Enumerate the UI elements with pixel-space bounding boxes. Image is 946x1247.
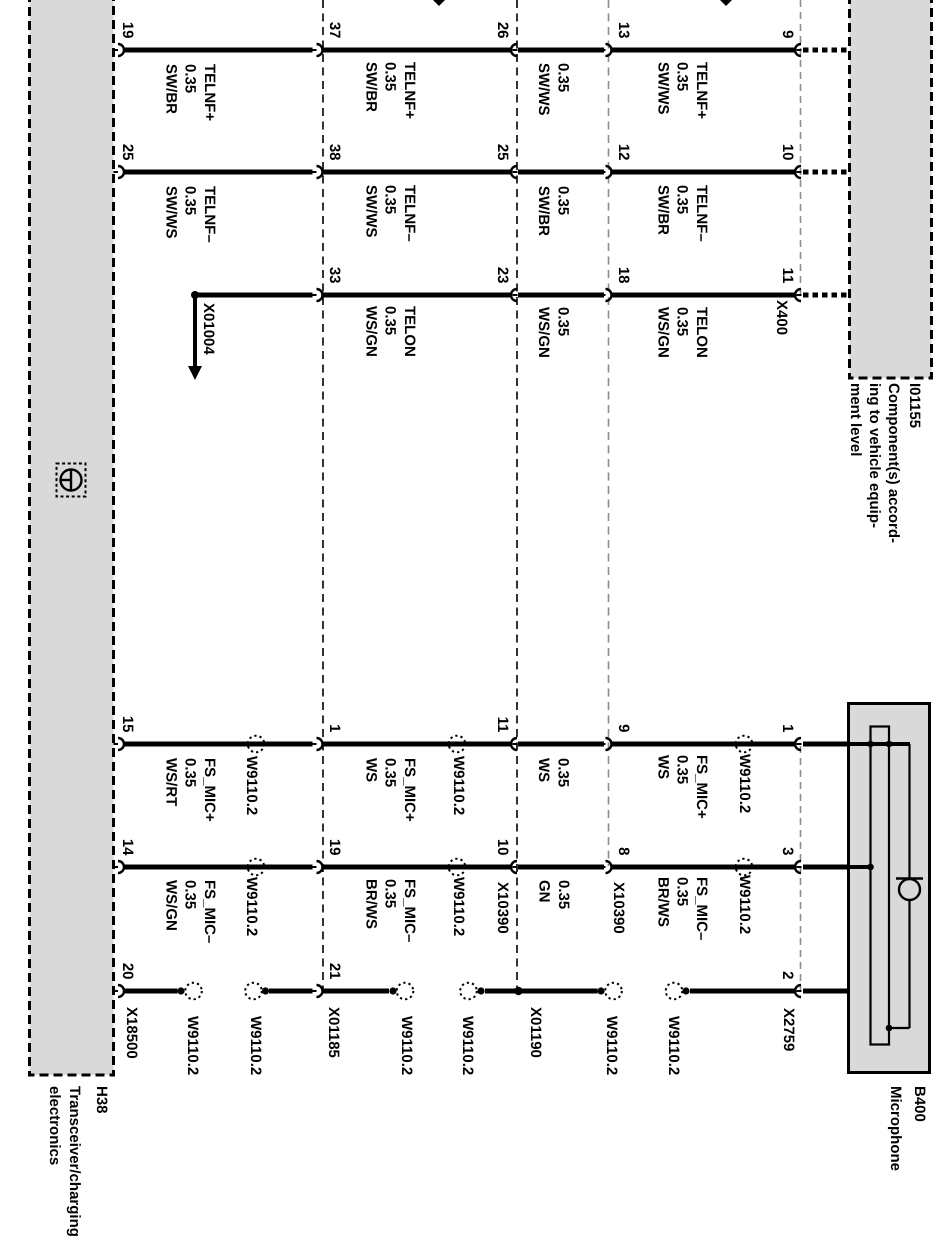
svg-text:H38: H38 (93, 1086, 110, 1114)
svg-text:SW/WS: SW/WS (162, 186, 179, 239)
svg-text:1: 1 (779, 724, 796, 732)
svg-text:FS_MIC+: FS_MIC+ (401, 758, 418, 822)
svg-text:25: 25 (119, 144, 136, 161)
svg-text:W9110.2: W9110.2 (736, 754, 753, 813)
svg-text:W9110.2: W9110.2 (398, 1016, 415, 1075)
svg-text:X18500: X18500 (123, 1007, 140, 1059)
svg-text:W9110.2: W9110.2 (450, 756, 467, 815)
svg-text:0.35: 0.35 (182, 186, 199, 215)
svg-text:ing to vehicle equip-: ing to vehicle equip- (866, 383, 883, 528)
svg-text:FS_MIC+: FS_MIC+ (201, 758, 218, 822)
svg-text:37: 37 (326, 22, 343, 39)
svg-text:SW/WS: SW/WS (362, 185, 379, 238)
svg-text:0.35: 0.35 (674, 62, 691, 91)
svg-text:FS_MIC–: FS_MIC– (693, 877, 710, 940)
svg-text:W9110.2: W9110.2 (450, 877, 467, 936)
svg-text:26: 26 (494, 22, 511, 39)
svg-text:3: 3 (779, 847, 796, 855)
svg-text:11: 11 (494, 717, 511, 733)
svg-text:WS/RT: WS/RT (162, 758, 179, 806)
svg-text:0.35: 0.35 (382, 306, 399, 335)
svg-text:WS: WS (535, 758, 552, 782)
svg-text:W9110.2: W9110.2 (459, 1016, 476, 1075)
svg-text:FS_MIC–: FS_MIC– (401, 879, 418, 942)
svg-text:20: 20 (119, 963, 136, 980)
svg-text:W9110.2: W9110.2 (243, 756, 260, 815)
svg-text:TELNF–: TELNF– (201, 186, 218, 243)
svg-text:W9110.2: W9110.2 (736, 875, 753, 934)
svg-text:WS/GN: WS/GN (162, 880, 179, 931)
svg-text:TELON: TELON (693, 307, 710, 358)
svg-text:X400: X400 (773, 300, 790, 335)
svg-text:14: 14 (119, 839, 136, 856)
svg-text:FS_MIC–: FS_MIC– (201, 880, 218, 943)
svg-text:TELNF–: TELNF– (401, 185, 418, 242)
svg-text:TELNF+: TELNF+ (201, 64, 218, 121)
svg-text:Transceiver/charging: Transceiver/charging (66, 1086, 83, 1237)
svg-text:2: 2 (779, 971, 796, 979)
svg-text:33: 33 (326, 267, 343, 284)
svg-text:BR/WS: BR/WS (362, 879, 379, 929)
svg-text:W9110.2: W9110.2 (665, 1016, 682, 1075)
svg-text:SW/BR: SW/BR (654, 185, 671, 235)
svg-text:FS_MIC+: FS_MIC+ (693, 755, 710, 819)
svg-text:0.35: 0.35 (182, 64, 199, 93)
svg-text:0.35: 0.35 (555, 880, 572, 909)
svg-text:13: 13 (615, 22, 632, 39)
svg-text:9: 9 (615, 724, 632, 732)
svg-text:TELNF+: TELNF+ (401, 62, 418, 119)
svg-text:WS/GN: WS/GN (654, 307, 671, 358)
svg-text:0.35: 0.35 (674, 307, 691, 336)
svg-text:GN: GN (536, 880, 553, 903)
svg-text:X10390: X10390 (610, 882, 627, 934)
svg-text:TELNF–: TELNF– (693, 185, 710, 242)
svg-text:TELNF+: TELNF+ (693, 62, 710, 119)
svg-text:WS/GN: WS/GN (535, 307, 552, 358)
svg-text:0.35: 0.35 (182, 880, 199, 909)
svg-text:SW/WS: SW/WS (654, 62, 671, 115)
svg-text:25: 25 (494, 144, 511, 161)
svg-text:BR/WS: BR/WS (654, 877, 671, 927)
svg-text:8: 8 (615, 847, 632, 855)
svg-text:W9110.2: W9110.2 (247, 1016, 264, 1075)
svg-text:WS/GN: WS/GN (362, 306, 379, 357)
svg-text:0.35: 0.35 (382, 758, 399, 787)
svg-text:0.35: 0.35 (555, 307, 572, 336)
svg-text:WS: WS (654, 755, 671, 779)
svg-text:Microphone: Microphone (887, 1086, 904, 1171)
svg-text:10: 10 (494, 839, 511, 856)
svg-text:X10390: X10390 (494, 882, 511, 934)
svg-text:0.35: 0.35 (182, 758, 199, 787)
svg-text:SW/WS: SW/WS (535, 63, 552, 116)
svg-text:10: 10 (779, 144, 796, 161)
svg-text:11: 11 (779, 268, 796, 284)
svg-text:38: 38 (326, 144, 343, 161)
svg-text:0.35: 0.35 (674, 877, 691, 906)
svg-text:SW/BR: SW/BR (535, 186, 552, 236)
svg-text:TELON: TELON (401, 306, 418, 357)
svg-text:X01185: X01185 (325, 1007, 342, 1058)
svg-text:X01004: X01004 (200, 303, 217, 355)
svg-text:X01190: X01190 (527, 1007, 544, 1058)
svg-text:W9110.2: W9110.2 (184, 1016, 201, 1075)
svg-text:0.35: 0.35 (674, 755, 691, 784)
svg-text:0.35: 0.35 (382, 62, 399, 91)
svg-text:0.35: 0.35 (674, 185, 691, 214)
svg-text:0.35: 0.35 (382, 185, 399, 214)
svg-text:ment level: ment level (847, 383, 864, 456)
svg-text:0.35: 0.35 (555, 186, 572, 215)
svg-text:SW/BR: SW/BR (162, 64, 179, 114)
svg-text:W9110.2: W9110.2 (603, 1016, 620, 1075)
svg-text:Component(s) accord-: Component(s) accord- (885, 383, 902, 543)
svg-text:I01155: I01155 (906, 383, 923, 428)
svg-text:19: 19 (326, 839, 343, 856)
svg-text:W9110.2: W9110.2 (243, 877, 260, 936)
svg-text:0.35: 0.35 (555, 63, 572, 92)
svg-text:18: 18 (615, 267, 632, 284)
svg-text:1: 1 (326, 724, 343, 732)
svg-text:12: 12 (615, 144, 632, 161)
svg-text:21: 21 (326, 963, 343, 980)
svg-text:23: 23 (494, 267, 511, 284)
svg-text:B400: B400 (911, 1086, 928, 1122)
svg-text:WS: WS (362, 758, 379, 782)
svg-text:electronics: electronics (46, 1086, 63, 1165)
svg-text:0.35: 0.35 (382, 879, 399, 908)
svg-text:15: 15 (119, 716, 136, 733)
svg-text:X2759: X2759 (780, 1008, 797, 1051)
svg-text:19: 19 (119, 22, 136, 39)
svg-text:9: 9 (779, 30, 796, 38)
svg-text:SW/BR: SW/BR (362, 62, 379, 112)
svg-text:0.35: 0.35 (555, 758, 572, 787)
